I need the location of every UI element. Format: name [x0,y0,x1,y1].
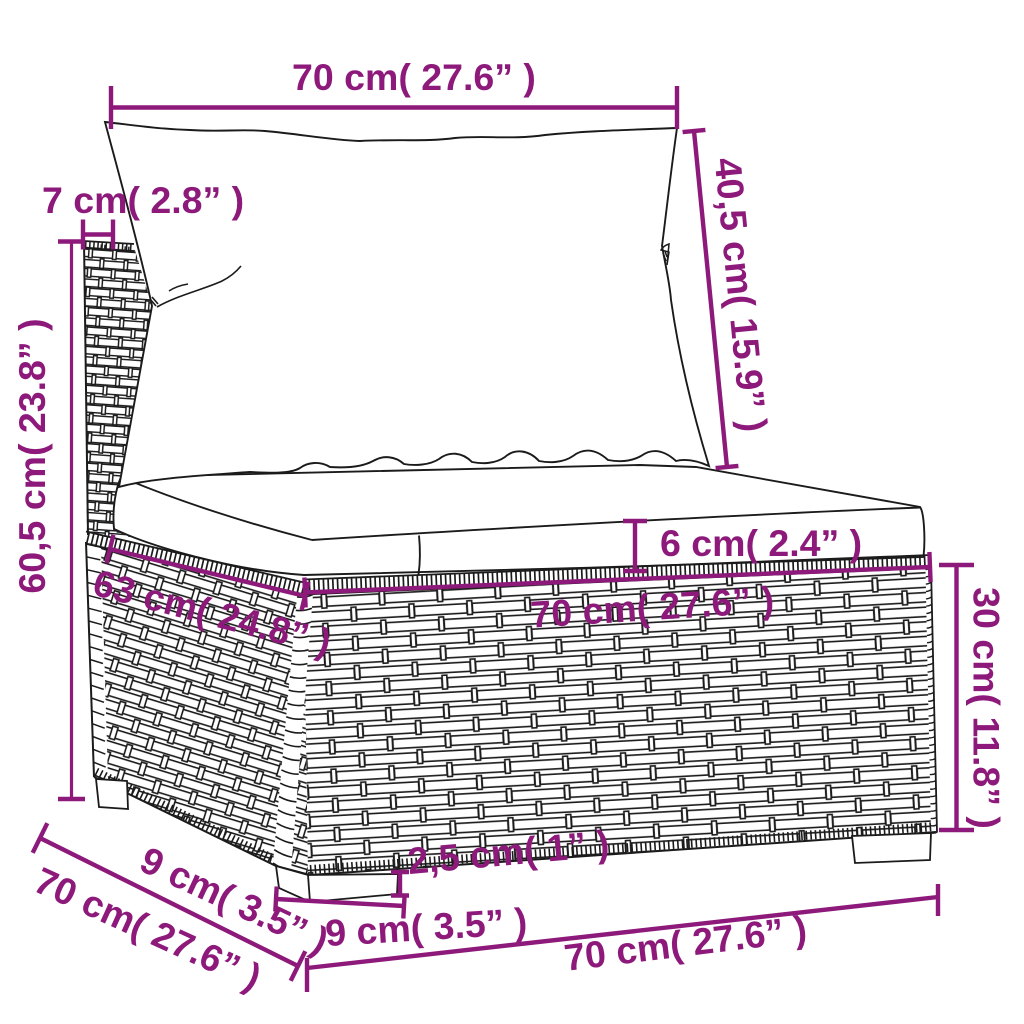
svg-text:60,5 cm( 23.8” ): 60,5 cm( 23.8” ) [11,318,53,593]
svg-text:30 cm( 11.8” ): 30 cm( 11.8” ) [966,587,1008,829]
svg-text:6 cm( 2.4” ): 6 cm( 2.4” ) [660,522,862,564]
svg-text:7 cm( 2.8” ): 7 cm( 2.8” ) [42,179,244,221]
svg-text:70 cm( 27.6” ): 70 cm( 27.6” ) [292,56,536,98]
